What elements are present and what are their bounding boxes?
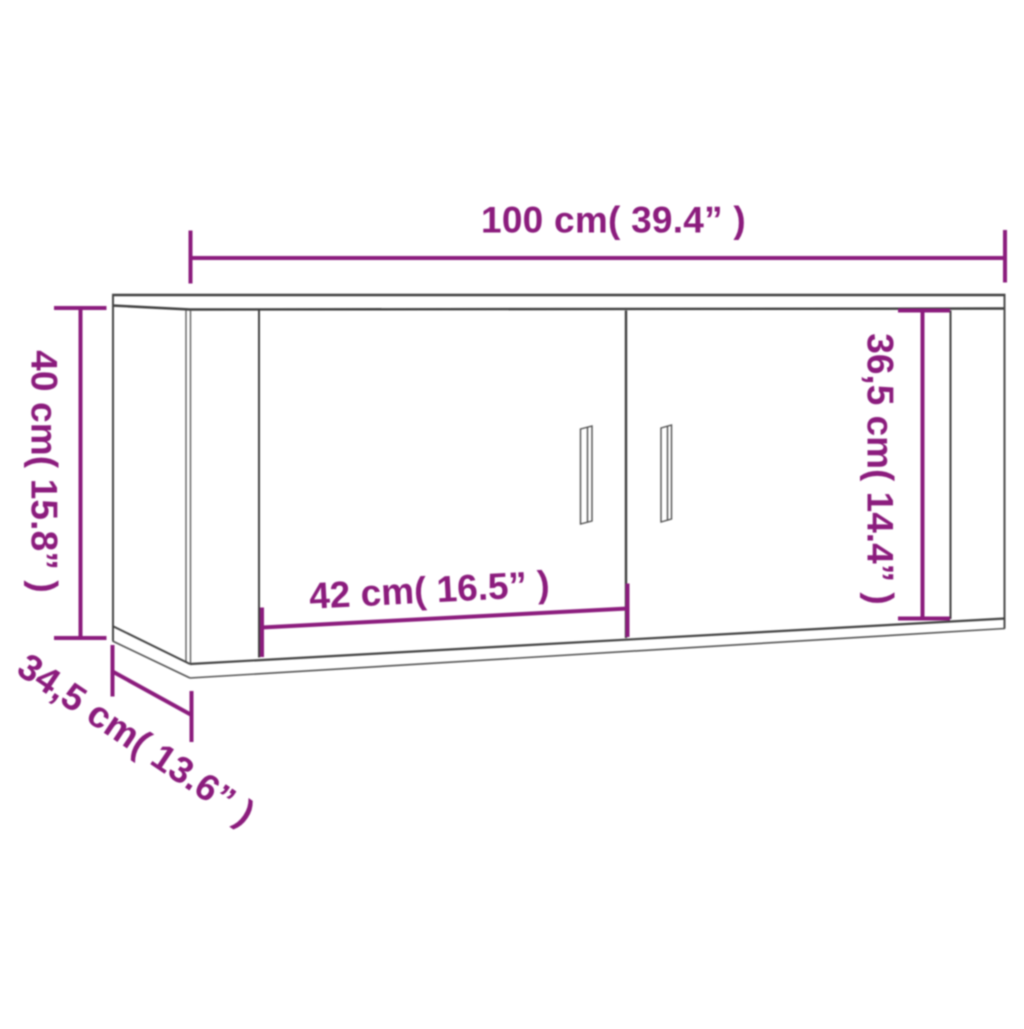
svg-text:100 cm( 39.4” ): 100 cm( 39.4” ) [481, 200, 746, 241]
svg-text:36,5 cm( 14.4” ): 36,5 cm( 14.4” ) [860, 333, 901, 604]
svg-text:40 cm( 15.8” ): 40 cm( 15.8” ) [24, 350, 65, 593]
